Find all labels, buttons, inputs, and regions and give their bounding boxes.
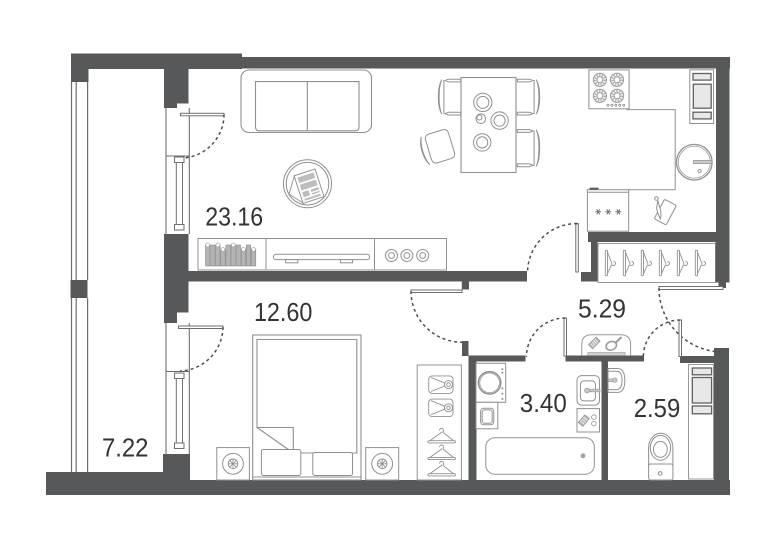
svg-text:3.40: 3.40	[520, 388, 567, 418]
svg-text:2.59: 2.59	[634, 393, 681, 423]
svg-text:7.22: 7.22	[102, 432, 149, 462]
svg-text:12.60: 12.60	[254, 297, 313, 327]
svg-text:23.16: 23.16	[205, 202, 263, 232]
svg-text:5.29: 5.29	[578, 294, 626, 324]
